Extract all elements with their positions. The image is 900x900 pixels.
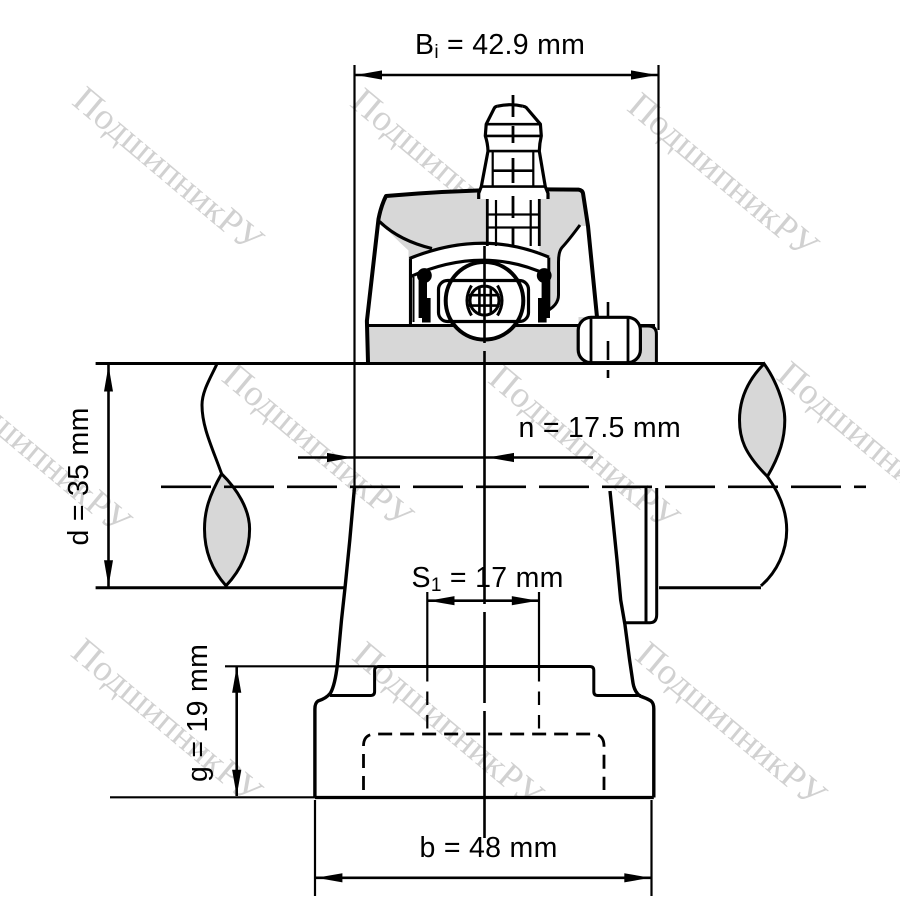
svg-text:ПодшипникРУ: ПодшипникРУ (620, 85, 827, 268)
svg-text:g = 19 mm: g = 19 mm (182, 644, 214, 782)
svg-text:ПодшипникРУ: ПодшипникРУ (628, 634, 835, 817)
svg-text:Bi = 42.9 mm: Bi = 42.9 mm (415, 29, 585, 63)
svg-text:n = 17.5 mm: n = 17.5 mm (519, 412, 682, 444)
svg-text:ПодшипникРУ: ПодшипникРУ (345, 634, 552, 817)
svg-text:b = 48 mm: b = 48 mm (420, 832, 558, 864)
svg-text:d = 35 mm: d = 35 mm (63, 407, 95, 545)
svg-text:ПодшипникРУ: ПодшипникРУ (769, 354, 900, 537)
svg-text:S1 = 17 mm: S1 = 17 mm (412, 562, 564, 596)
svg-text:ПодшипникРУ: ПодшипникРУ (64, 631, 271, 814)
svg-text:ПодшипникРУ: ПодшипникРУ (65, 79, 272, 262)
